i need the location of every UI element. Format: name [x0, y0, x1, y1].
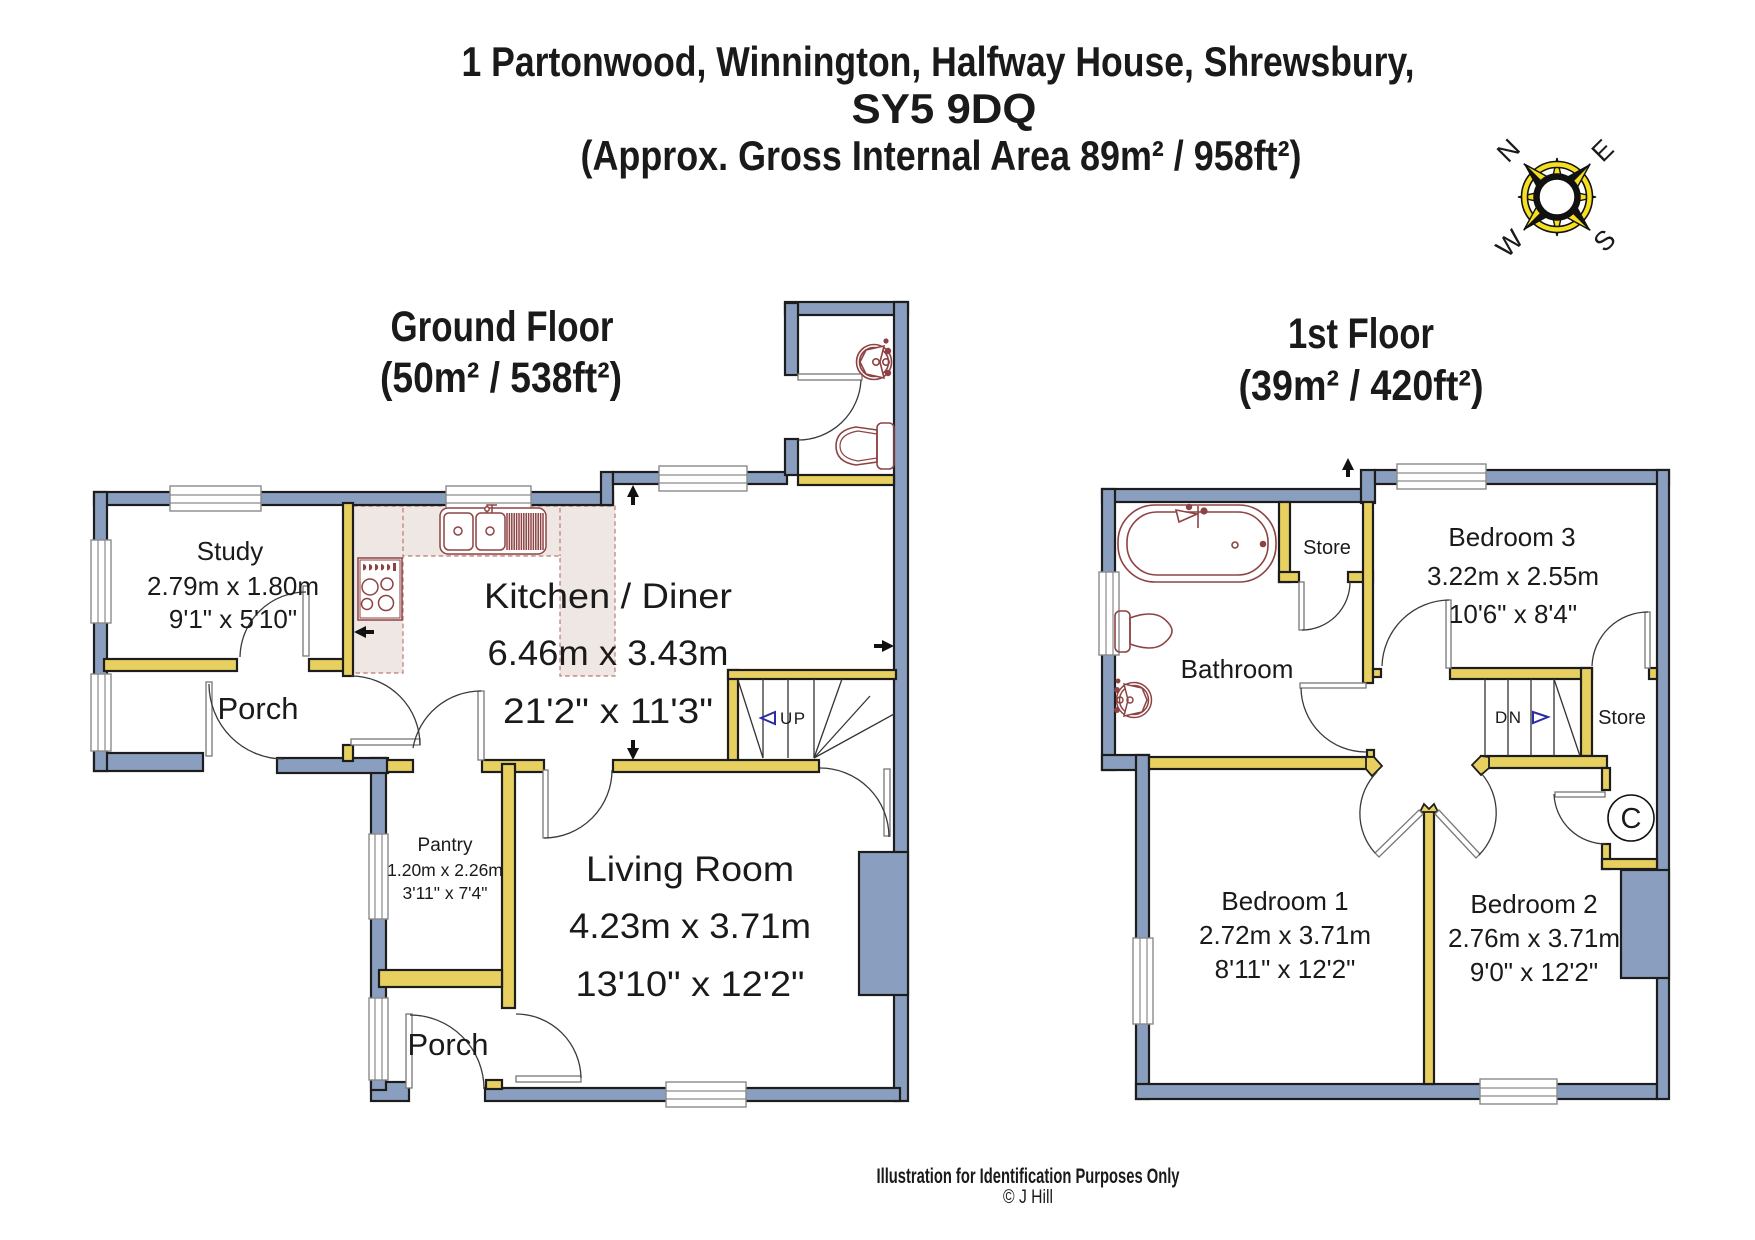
svg-text:9'0" x 12'2": 9'0" x 12'2"	[1470, 957, 1598, 987]
svg-text:Living Room: Living Room	[586, 850, 794, 889]
svg-text:1 Partonwood, Winnington, Half: 1 Partonwood, Winnington, Halfway House,…	[462, 38, 1415, 85]
svg-text:1.20m x 2.26m: 1.20m x 2.26m	[387, 860, 503, 880]
svg-text:Store: Store	[1598, 707, 1646, 729]
svg-text:UP: UP	[780, 709, 807, 728]
svg-text:SY5 9DQ: SY5 9DQ	[852, 85, 1037, 132]
svg-text:6.46m x 3.43m: 6.46m x 3.43m	[488, 634, 729, 673]
svg-text:C: C	[1621, 803, 1642, 835]
svg-text:Bedroom 2: Bedroom 2	[1470, 889, 1597, 919]
svg-text:2.79m x 1.80m: 2.79m x 1.80m	[147, 571, 319, 601]
svg-text:Illustration for Identificatio: Illustration for Identification Purposes…	[877, 1165, 1180, 1188]
svg-text:Pantry: Pantry	[418, 835, 473, 856]
svg-text:DN: DN	[1495, 708, 1523, 727]
svg-text:© J Hill: © J Hill	[1003, 1187, 1053, 1208]
svg-text:(Approx. Gross Internal Area 8: (Approx. Gross Internal Area 89m² / 958f…	[581, 132, 1302, 179]
svg-text:3'11" x 7'4": 3'11" x 7'4"	[403, 883, 488, 903]
svg-text:Porch: Porch	[408, 1027, 489, 1062]
svg-text:13'10" x 12'2": 13'10" x 12'2"	[576, 965, 805, 1004]
svg-text:8'11" x 12'2": 8'11" x 12'2"	[1215, 954, 1356, 984]
svg-text:3.22m x 2.55m: 3.22m x 2.55m	[1427, 561, 1599, 591]
svg-text:1st Floor: 1st Floor	[1288, 310, 1434, 358]
svg-text:Bedroom 3: Bedroom 3	[1448, 522, 1575, 552]
svg-text:21'2" x 11'3": 21'2" x 11'3"	[503, 692, 713, 731]
svg-text:Bedroom 1: Bedroom 1	[1221, 886, 1348, 916]
svg-text:4.23m x 3.71m: 4.23m x 3.71m	[569, 907, 811, 946]
svg-text:(39m² / 420ft²): (39m² / 420ft²)	[1239, 362, 1484, 410]
svg-text:10'6" x 8'4": 10'6" x 8'4"	[1449, 599, 1577, 629]
svg-text:Kitchen / Diner: Kitchen / Diner	[484, 577, 732, 616]
svg-text:Bathroom: Bathroom	[1181, 654, 1294, 684]
svg-text:9'1" x 5'10": 9'1" x 5'10"	[169, 604, 297, 634]
svg-text:2.76m x 3.71m: 2.76m x 3.71m	[1448, 923, 1620, 953]
svg-text:Ground Floor: Ground Floor	[391, 303, 614, 351]
svg-text:Study: Study	[197, 536, 264, 566]
svg-text:2.72m x 3.71m: 2.72m x 3.71m	[1199, 920, 1371, 950]
svg-text:Store: Store	[1303, 537, 1351, 559]
svg-text:(50m² / 538ft²): (50m² / 538ft²)	[380, 354, 622, 402]
svg-text:Porch: Porch	[218, 691, 299, 726]
